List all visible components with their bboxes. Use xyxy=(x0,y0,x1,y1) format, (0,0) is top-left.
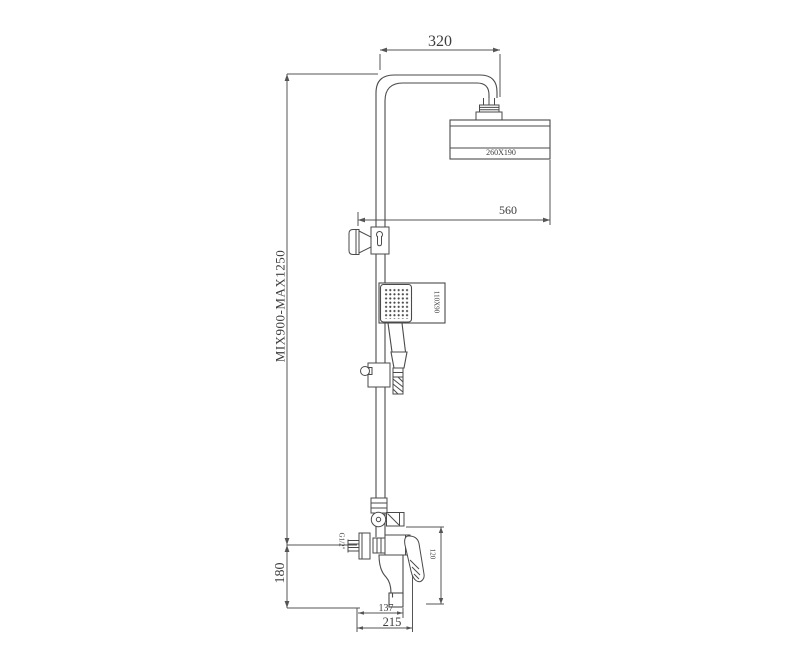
dim-arm-width-label: 320 xyxy=(428,34,452,50)
inlet-thread-label: G1/2" xyxy=(338,533,345,550)
slider-bracket xyxy=(361,363,391,387)
wall-bracket xyxy=(349,227,389,255)
mixer-height-label: 180 xyxy=(274,563,288,584)
dim-head-offset-label: 560 xyxy=(499,204,517,216)
shower-technical-drawing xyxy=(0,0,800,667)
hand-shower-size-label: 110X90 xyxy=(433,291,440,313)
total-reach-label: 215 xyxy=(383,616,402,629)
hose-nut xyxy=(393,368,403,394)
diverter xyxy=(371,498,404,527)
drawing-canvas: 320 560 260X190 110X90 MIX900-MAX1250 18… xyxy=(0,0,800,667)
hand-shower-spray-face xyxy=(383,287,409,319)
arm-connector xyxy=(476,98,502,120)
column-height-range-label: MIX900-MAX1250 xyxy=(274,250,287,362)
handle-drop-label: 120 xyxy=(429,549,436,560)
overhead-shower-size-label: 260X190 xyxy=(486,149,516,157)
spout xyxy=(379,555,403,607)
spout-reach-label: 137 xyxy=(379,604,394,614)
